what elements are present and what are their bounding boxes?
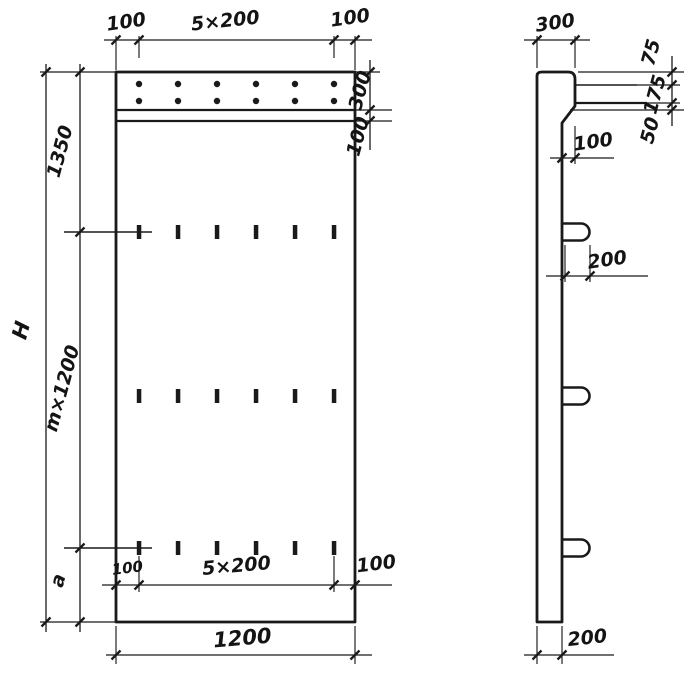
dim-label-top-right: 100 xyxy=(329,4,371,31)
dim-label-cap-width: 300 xyxy=(534,9,576,36)
dim-label-panel-thickness: 200 xyxy=(566,625,608,651)
cap-groove-lines xyxy=(575,85,647,103)
side-offset-dimension: 100 xyxy=(550,126,614,164)
dim-label-bottom-segment: a xyxy=(46,571,71,589)
anchor-loop-top xyxy=(562,224,590,241)
dim-label-bottom-inner-center: 5×200 xyxy=(201,552,271,580)
dim-label-bottom-inner-right: 100 xyxy=(355,551,397,578)
side-view: 300 75 175 50 100 xyxy=(524,9,684,664)
dim-label-chain-top: 75 xyxy=(637,37,665,68)
slot-row-bottom xyxy=(137,541,336,555)
front-bottom-dimension: 1200 xyxy=(106,624,372,664)
drawing-sheet: 100 5×200 100 300 100 xyxy=(0,0,700,700)
dim-label-top-center: 5×200 xyxy=(190,6,261,35)
dim-label-bottom-inner-left: 100 xyxy=(111,557,144,579)
slot-row-middle xyxy=(137,389,336,403)
dim-label-overall-height: H xyxy=(7,318,35,342)
dim-label-top-left: 100 xyxy=(105,8,147,35)
side-right-chain-dimension: 75 175 50 xyxy=(570,37,684,146)
front-view: 100 5×200 100 300 100 xyxy=(7,4,397,664)
dim-label-face-offset: 100 xyxy=(572,128,614,155)
rebar-dot-grid xyxy=(136,81,337,104)
dim-label-middle-segment: m×1200 xyxy=(40,343,84,434)
front-left-dimensions: H 1350 m×1200 a xyxy=(7,64,152,632)
panel-outline xyxy=(116,72,355,622)
side-bottom-dimension: 200 xyxy=(524,625,614,664)
side-top-dimension: 300 xyxy=(524,9,590,68)
dim-label-overall-width: 1200 xyxy=(212,624,272,653)
anchor-loop-bottom xyxy=(562,540,590,557)
front-bottom-inner-dimension: 100 5×200 100 xyxy=(102,551,397,592)
dim-label-cap-height: 300 xyxy=(344,68,376,112)
dim-label-top-segment: 1350 xyxy=(43,123,78,180)
dim-label-chain-bottom: 50 xyxy=(636,115,664,146)
dim-label-loop-length: 200 xyxy=(586,246,628,273)
panel-technical-drawing: 100 5×200 100 300 100 xyxy=(0,0,700,700)
anchor-loop-middle xyxy=(562,388,590,405)
front-top-dimension: 100 5×200 100 xyxy=(104,4,372,70)
slot-row-top xyxy=(137,225,336,239)
